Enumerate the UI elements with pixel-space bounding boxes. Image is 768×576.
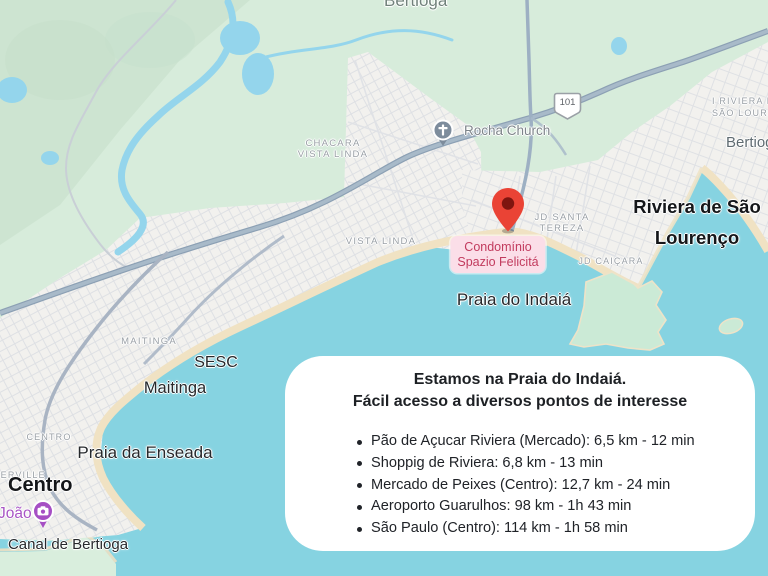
list-item: São Paulo (Centro): 114 km - 1h 58 min (356, 518, 755, 540)
town-label-bertioga-right: Bertioga (726, 134, 768, 151)
bullet-dot (357, 505, 362, 510)
area-label-maitinga: MAITINGA (121, 336, 177, 347)
list-item: Mercado de Peixes (Centro): 12,7 km - 24… (356, 475, 755, 497)
attraction-camera-icon[interactable] (31, 499, 55, 529)
bullet-dot (357, 440, 362, 445)
card-title-line1: Estamos na Praia do Indaiá. (285, 369, 755, 391)
list-item: Shoppig de Riviera: 6,8 km - 13 min (356, 453, 755, 475)
area-label-centro: CENTRO (26, 432, 71, 443)
city-label-bertioga-top: Bertioga (384, 0, 447, 11)
water-label-canal-de-bertioga: Canal de Bertioga (8, 536, 128, 553)
area-label-i-riviera: I RIVIERA DESÃO LOURENÇO (712, 95, 768, 119)
beach-label-praia-da-enseada: Praia da Enseada (77, 443, 212, 463)
poi-distance-list: Pão de Açucar Riviera (Mercado): 6,5 km … (285, 431, 755, 540)
beach-label-praia-do-indaia: Praia do Indaiá (457, 290, 571, 310)
bullet-dot (357, 483, 362, 488)
bullet-dot (357, 461, 362, 466)
district-label-centro: Centro (8, 474, 72, 497)
poi-label-joao: João (0, 505, 32, 523)
list-item: Aeroporto Guarulhos: 98 km - 1h 43 min (356, 496, 755, 518)
card-title: Estamos na Praia do Indaiá. Fácil acesso… (285, 369, 755, 413)
card-title-line2: Fácil acesso a diversos pontos de intere… (285, 391, 755, 413)
church-icon[interactable] (432, 119, 454, 147)
area-label-jd-santa-tereza: JD SANTATEREZA (534, 212, 589, 234)
route-101-shield: 101 (553, 92, 582, 121)
map-screenshot: Bertioga CHACARAVISTA LINDA VISTA LINDA … (0, 0, 768, 576)
red-map-pin[interactable] (490, 187, 526, 233)
condominio-label[interactable]: Condomínio Spazio Felicitá (450, 236, 545, 273)
poi-label-rocha-church: Rocha Church (464, 123, 550, 138)
info-card: Estamos na Praia do Indaiá. Fácil acesso… (285, 356, 755, 551)
area-label-vista-linda: VISTA LINDA (346, 236, 416, 247)
district-label-maitinga: Maitinga (144, 379, 206, 398)
bullet-dot (357, 527, 362, 532)
area-label-jd-caicara: JD CAIÇARA (578, 256, 643, 267)
area-label-chacara-vista-linda: CHACARAVISTA LINDA (298, 138, 368, 160)
district-label-riviera: Riviera de SãoLourenço (633, 191, 761, 253)
poi-label-sesc: SESC (194, 354, 238, 372)
list-item: Pão de Açucar Riviera (Mercado): 6,5 km … (356, 431, 755, 453)
